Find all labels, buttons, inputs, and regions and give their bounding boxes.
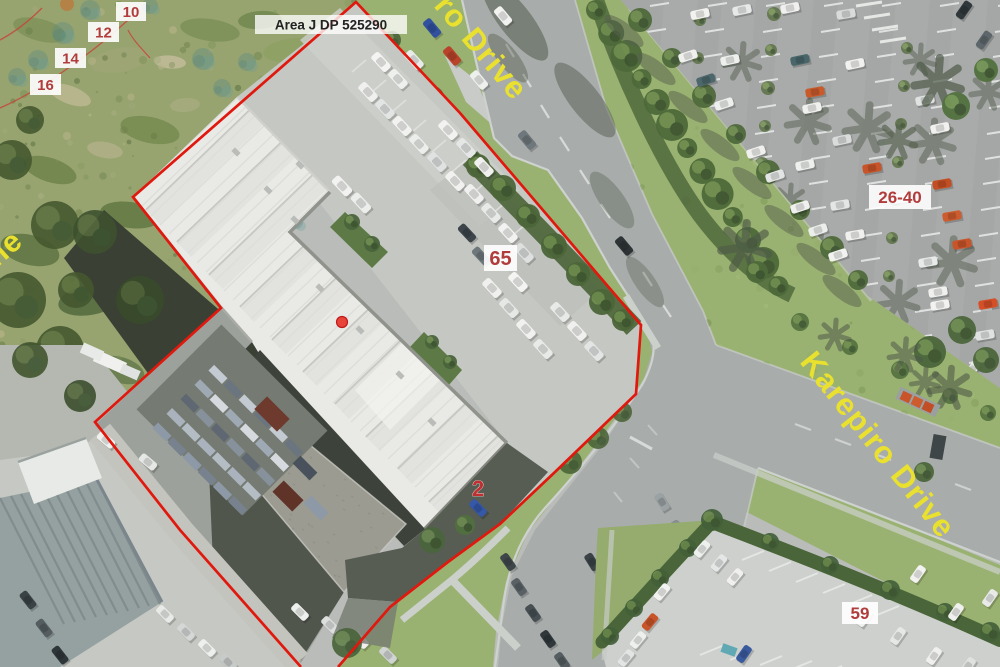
svg-text:65: 65 xyxy=(489,248,511,270)
svg-text:2: 2 xyxy=(472,476,484,501)
svg-text:Area J DP 525290: Area J DP 525290 xyxy=(275,18,387,33)
svg-text:26-40: 26-40 xyxy=(878,188,921,207)
svg-text:12: 12 xyxy=(95,24,112,41)
svg-text:14: 14 xyxy=(62,50,79,67)
svg-text:59: 59 xyxy=(851,604,870,623)
svg-text:10: 10 xyxy=(123,4,140,21)
svg-text:16: 16 xyxy=(37,77,54,94)
